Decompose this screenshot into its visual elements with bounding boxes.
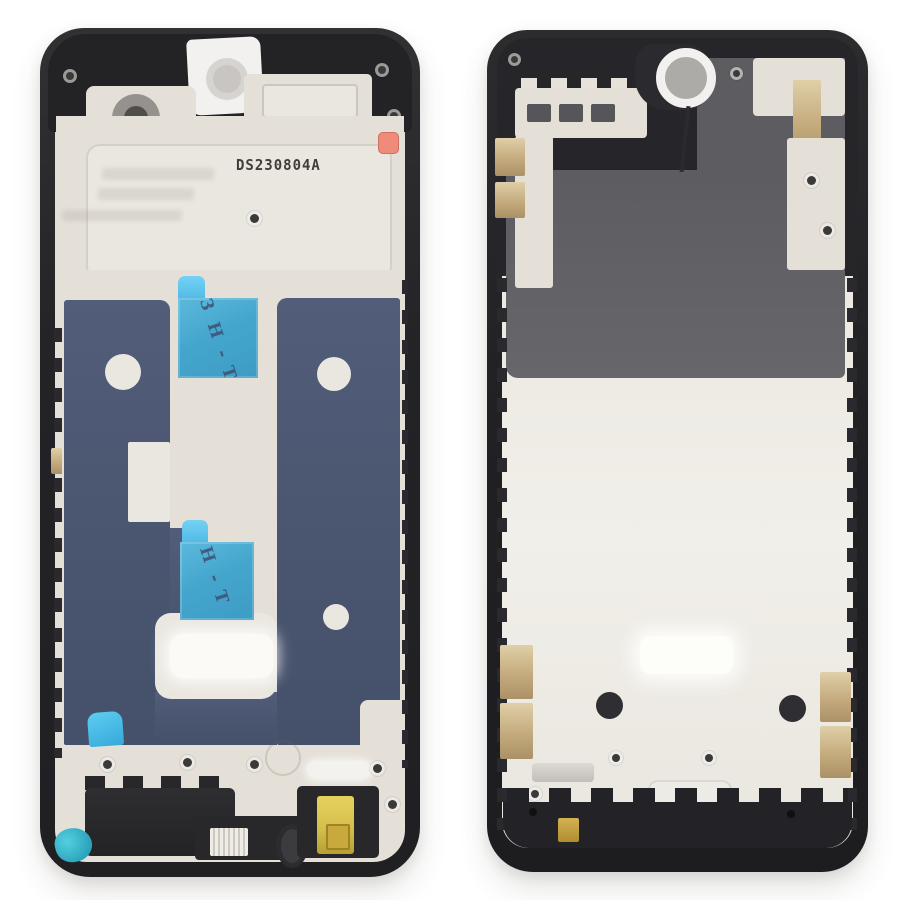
embossed-mold-text	[102, 168, 214, 180]
side-contact-gold-lower-left	[500, 645, 533, 699]
adhesive-hole-right	[317, 357, 351, 391]
screw-hole	[66, 72, 74, 80]
top-right-bracket-slot	[262, 84, 358, 118]
screw-boss-hole-left	[596, 692, 623, 719]
side-contact-gold-lower-left	[500, 703, 533, 759]
microphone-hole	[529, 808, 537, 816]
bottom-mold-pill	[307, 761, 371, 779]
bracket-slot	[591, 104, 615, 122]
front-camera-ring	[656, 48, 716, 108]
screw-hole	[612, 754, 620, 762]
screw-hole	[388, 800, 397, 809]
product-photo-phone-middle-frames: DS230804A 3H-T H-T	[0, 0, 900, 900]
embossed-mold-text	[62, 210, 182, 221]
screw-hole	[103, 760, 112, 769]
screw-hole	[183, 758, 192, 767]
speaker-opening	[170, 634, 273, 678]
bracket-slot	[559, 104, 583, 122]
screw-hole	[378, 66, 386, 74]
serial-number-stamp: DS230804A	[236, 158, 321, 175]
screw-hole	[705, 754, 713, 762]
screw-hole	[823, 226, 832, 235]
bottom-mold-circle	[265, 740, 301, 776]
screw-boss-hole-right	[779, 695, 806, 722]
pull-tape-upper: 3H-T	[178, 298, 258, 378]
bottom-contact-gold	[558, 818, 579, 842]
adhesive-notch-bottom-right	[360, 700, 400, 745]
microphone-hole	[787, 810, 795, 818]
side-contact-gold	[495, 182, 525, 218]
side-contact-gold-lower-right	[820, 672, 851, 722]
screw-hole	[733, 70, 740, 77]
headphone-jack-slot	[326, 824, 350, 850]
right-bracket-column	[787, 138, 845, 270]
metal-shield-pill	[532, 763, 594, 782]
qc-sticker-salmon	[378, 132, 399, 154]
adhesive-hole-left	[105, 354, 141, 390]
screw-hole	[511, 56, 518, 63]
flex-connector	[210, 828, 248, 856]
side-contact-gold-lower-right	[820, 726, 851, 778]
screw-hole	[373, 764, 382, 773]
side-contact-gold	[495, 138, 525, 176]
adhesive-hole-small	[323, 604, 349, 630]
screw-hole	[250, 760, 259, 769]
left-frame-front-housing-back-view: DS230804A 3H-T H-T	[40, 28, 420, 877]
pull-tape-lower-text: H-T	[195, 544, 236, 619]
screw-hole	[807, 176, 816, 185]
embossed-mold-text	[98, 188, 194, 200]
adhesive-liner-tab	[87, 711, 124, 747]
pull-tape-lower: H-T	[180, 542, 254, 620]
bracket-slot	[527, 104, 551, 122]
bottom-black-strip	[503, 802, 852, 848]
adhesive-slot-left	[128, 442, 170, 522]
speaker-opening	[640, 636, 733, 674]
alignment-hole	[250, 214, 259, 223]
adhesive-panel-bottom-center	[155, 692, 277, 745]
front-camera-opening-center	[213, 65, 241, 93]
right-frame-front-housing-front-view	[487, 30, 868, 872]
